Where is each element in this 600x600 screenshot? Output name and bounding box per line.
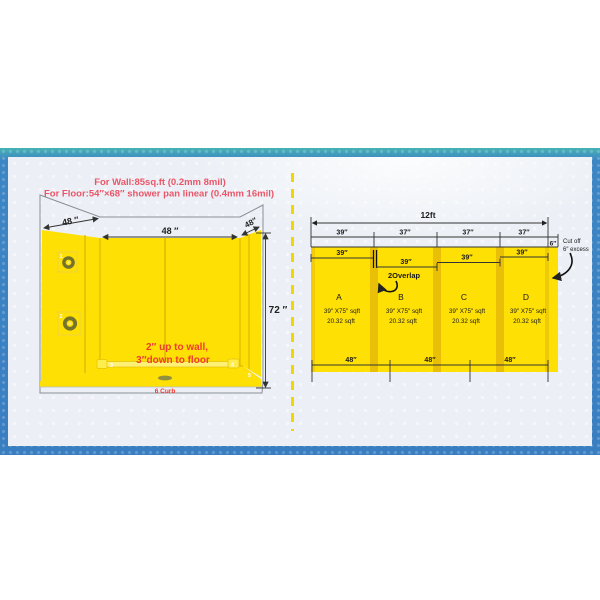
sheet-width-d: 39″ (516, 250, 528, 257)
bottom-48-b: 48″ (424, 357, 436, 364)
curb-label: 6 Curb (155, 388, 176, 395)
panel-d-size: 39″ X75″ sqft (510, 308, 547, 315)
panel-a-size: 39″ X75″ sqft (324, 308, 361, 315)
seg-label-39: 39″ (336, 230, 348, 237)
seg-label-37c: 37″ (518, 230, 530, 237)
dim-label-left-48: 48 ″ (61, 214, 80, 227)
pan-bar-left-cap (97, 360, 107, 369)
panel-d-name: D (523, 292, 529, 302)
cutoff-note-line2: 6″ excess (563, 247, 589, 253)
seg-label-37a: 37″ (399, 230, 411, 237)
note-down-to-floor: 3″down to floor (136, 355, 210, 366)
panel-b-area: 20.32 sqft (389, 318, 417, 325)
dim-label-72: 72 ″ (269, 305, 288, 316)
right-wall-panel (240, 230, 261, 377)
dim-12ft-label: 12ft (420, 210, 435, 220)
sheet-width-a: 39″ (336, 250, 348, 257)
marker-1: 1 (60, 254, 63, 260)
dim-label-back-48: 48 ″ (162, 226, 180, 236)
bottom-48-c: 48″ (504, 357, 516, 364)
floor-spec-text: For Floor:54″×68″ shower pan linear (0.4… (44, 189, 274, 200)
product-diagram-image: For Wall:85sq.ft (0.2mm 8mil) For Floor:… (0, 0, 600, 600)
panel-c-area: 20.32 sqft (452, 318, 480, 325)
dim-label-right-48: 48″ (243, 216, 259, 230)
sheet-width-b: 39″ (400, 259, 412, 266)
drain (158, 376, 172, 381)
panel-a-name: A (336, 292, 342, 302)
panel-b-size: 39″ X75″ sqft (386, 308, 423, 315)
sheet-width-c: 39″ (461, 255, 473, 262)
marker-5: 5 (248, 373, 251, 379)
note-up-to-wall: 2″ up to wall, (146, 342, 208, 353)
bottom-48-a: 48″ (345, 357, 357, 364)
dashed-divider-line (291, 173, 294, 431)
marker-2: 2 (60, 314, 63, 320)
panel-c-name: C (461, 292, 467, 302)
panel-b-name: B (398, 292, 404, 302)
cutoff-note-line1: Cut off (563, 239, 581, 245)
panel-a-area: 20.32 sqft (327, 318, 355, 325)
wall-spec-text: For Wall:85sq.ft (0.2mm 8mil) (94, 177, 226, 188)
left-wall-panel (41, 230, 100, 382)
overlap-label: 2Overlap (388, 271, 421, 280)
sheet-left-edge-band (311, 247, 315, 372)
shower-3d-diagram: For Wall:85sq.ft (0.2mm 8mil) For Floor:… (30, 163, 290, 435)
seg-label-37b: 37″ (462, 230, 474, 237)
marker-3: 3 (110, 363, 113, 369)
panel-c-size: 39″ X75″ sqft (449, 308, 486, 315)
panel-d-area: 20.32 sqft (513, 318, 541, 325)
panel-layout-diagram: 12ft 39″ 37″ 37″ 37″ 6″ Cut off 6″ exces… (300, 203, 592, 388)
excess-6-label: 6″ (550, 241, 557, 248)
